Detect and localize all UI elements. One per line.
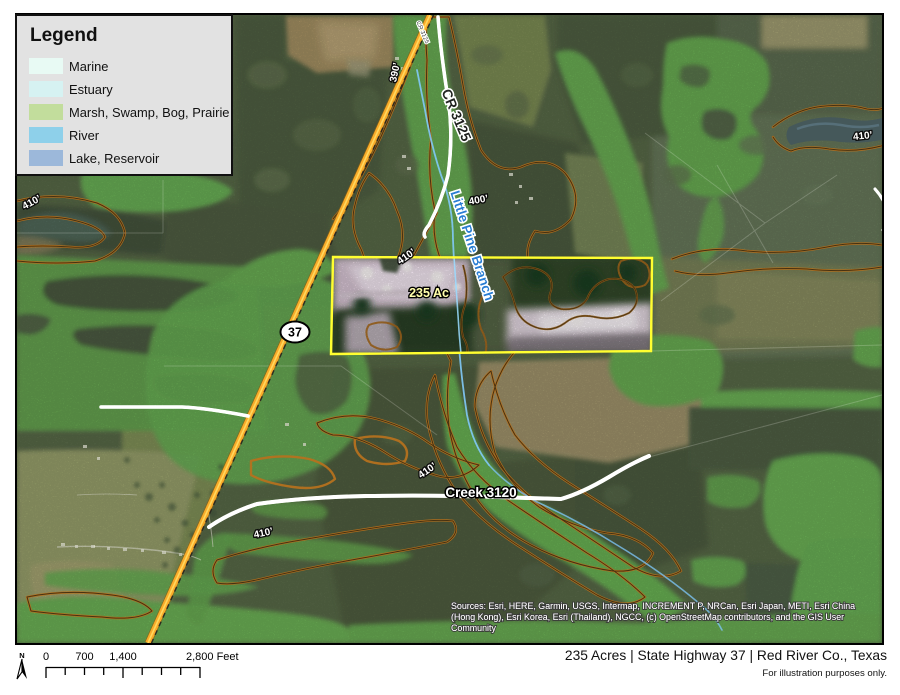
svg-text:Sources: Esri, HERE, Garmin, U: Sources: Esri, HERE, Garmin, USGS, Inter… [451, 601, 855, 611]
svg-text:37: 37 [288, 326, 302, 340]
svg-text:410’: 410’ [852, 130, 873, 143]
svg-text:Creek 3120: Creek 3120 [445, 485, 516, 500]
svg-text:(Hong Kong), Esri Korea, Esri: (Hong Kong), Esri Korea, Esri (Thailand)… [451, 612, 844, 622]
svg-text:Community: Community [451, 623, 496, 633]
svg-text:235 Ac: 235 Ac [409, 286, 449, 300]
